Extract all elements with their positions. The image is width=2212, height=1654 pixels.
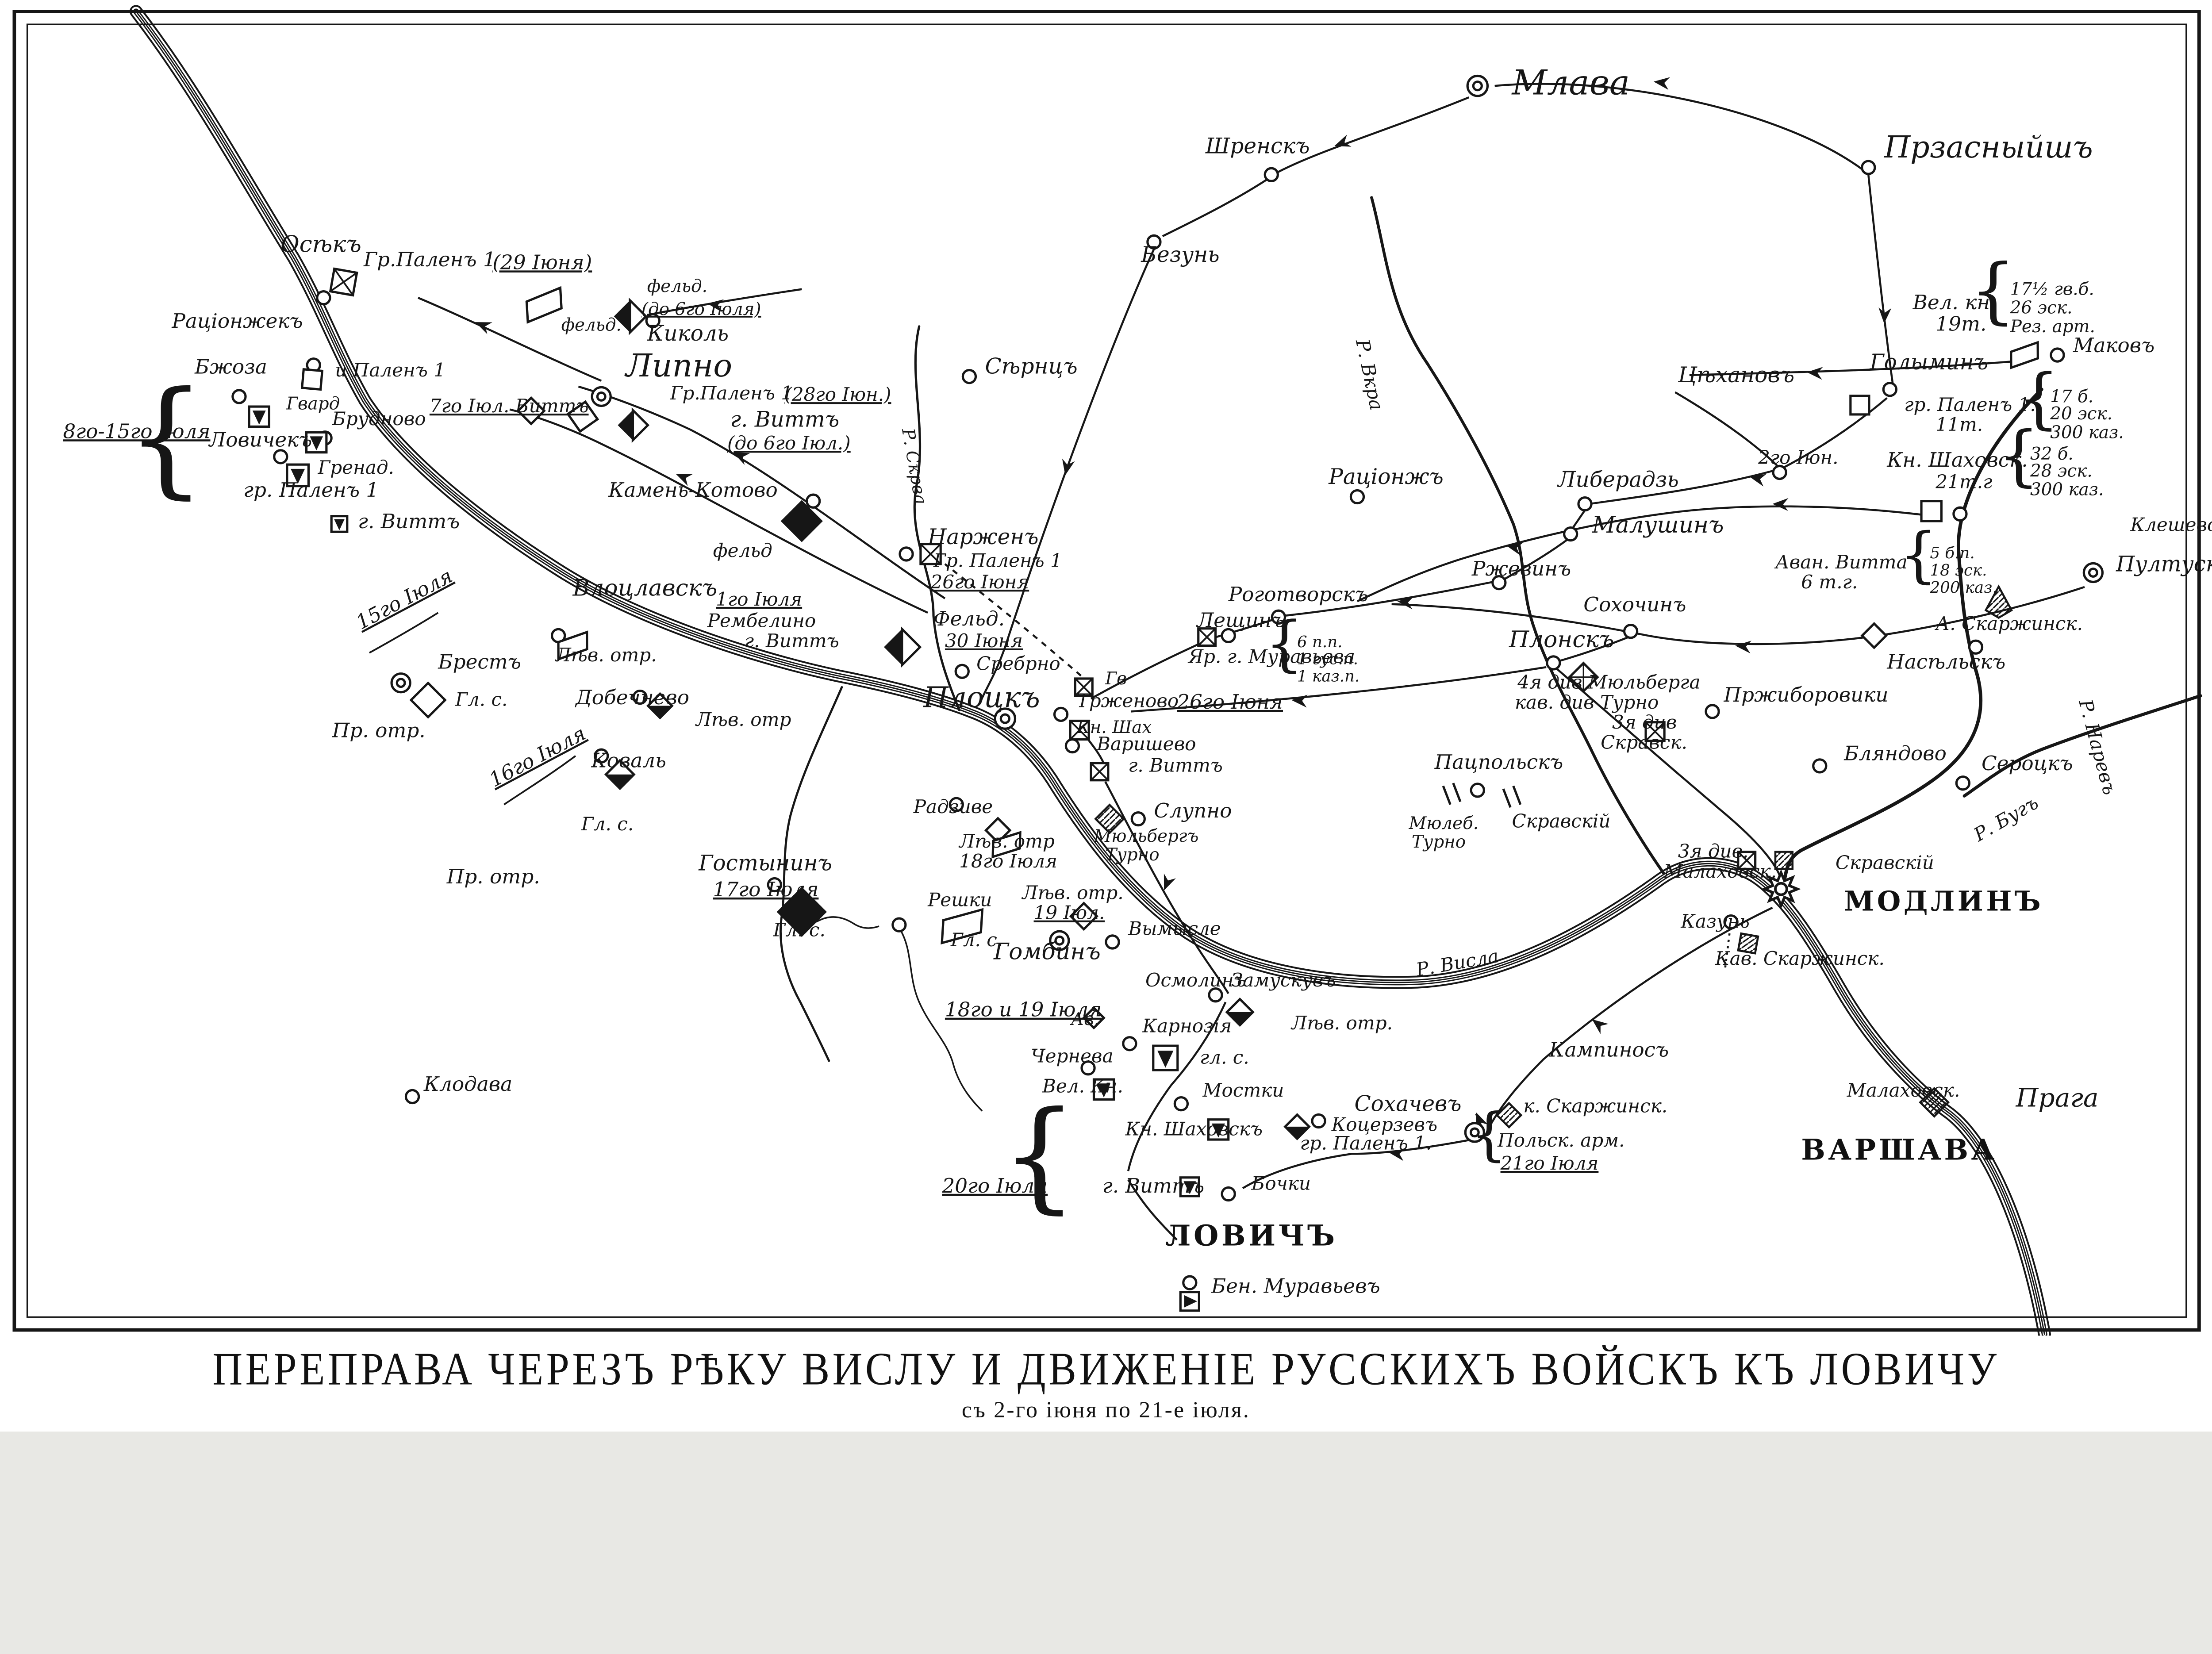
symbol-c	[956, 665, 968, 678]
map-label: 19 Іюл.	[1034, 902, 1105, 924]
map-label: 5 б.п.	[1930, 544, 1974, 562]
map-label: Решки	[927, 889, 992, 911]
map-label: Польск. арм.	[1497, 1129, 1624, 1151]
map-title: ПЕРЕПРАВА ЧЕРЕЗЪ РѢКУ ВИСЛУ И ДВИЖЕНІЕ Р…	[0, 1344, 2212, 1397]
route	[1443, 783, 1460, 805]
map-label: 26 эск.	[2010, 298, 2073, 318]
symbol-c	[1066, 740, 1079, 752]
map-label: Брестъ	[438, 650, 521, 673]
map-label: Пр. отр.	[332, 719, 426, 742]
map-label: Роготворскъ	[1228, 583, 1368, 606]
map-label: гр. Паленъ 1	[243, 478, 379, 502]
map-label: Камень-Котово	[608, 478, 777, 502]
map-label: Гл. с.	[581, 813, 634, 835]
symbol-c	[1175, 1098, 1187, 1110]
map-label: г. Виттъ	[1102, 1174, 1204, 1197]
map-label: фельд	[713, 540, 772, 561]
route	[1503, 786, 1521, 808]
symbol-c	[317, 292, 330, 304]
route	[1571, 398, 1887, 531]
map-label: Лѣв. отр	[695, 709, 791, 730]
map-label: Осѣкъ	[280, 231, 361, 258]
symbol-sq	[1921, 501, 1941, 521]
map-label: Бен. Муравьевъ	[1211, 1274, 1380, 1297]
map-label: 30 Іюня	[945, 630, 1023, 652]
map-label: Коваль	[591, 749, 666, 772]
map-label: 6 п.п.	[1297, 633, 1342, 651]
map-label: Гомбинъ	[993, 938, 1101, 965]
map-label: Липно	[624, 347, 732, 384]
map-label: Млава	[1511, 63, 1630, 103]
route-arrow	[1588, 1014, 1609, 1034]
map-label: Бжоза	[194, 355, 267, 379]
map-label: МОДЛИНЪ	[1844, 885, 2043, 917]
symbol-dbw	[618, 410, 648, 440]
map-subtitle: съ 2-го іюня по 21-е іюля.	[0, 1399, 2212, 1424]
map-label: Вел. кн.	[1912, 291, 1997, 314]
map-label: Бочки	[1251, 1172, 1311, 1194]
map-label: Нарженъ	[927, 525, 1039, 549]
map-label: Прзасныйшъ	[1883, 130, 2093, 165]
route-arrow	[1291, 694, 1308, 708]
map-label: 1 гус.п.	[1297, 650, 1358, 668]
map-label: Сохачевъ	[1354, 1091, 1461, 1116]
map-label: 21го Іюля	[1500, 1152, 1599, 1174]
map-label: Кав. Скаржинск.	[1715, 948, 1885, 969]
map-label: Р. Бугъ	[1970, 791, 2042, 846]
map-label: 17го Іюля	[713, 878, 819, 901]
symbol-sqt	[331, 516, 347, 532]
map-label: 300 каз.	[2030, 480, 2104, 500]
route-arrow	[1653, 75, 1670, 90]
map-label: 28 эск.	[2030, 461, 2093, 481]
map-label: 1го Іюля	[716, 588, 802, 610]
map-label: Казунь	[1680, 910, 1750, 932]
route-arrow	[1772, 498, 1789, 511]
map-label: Насѣльскъ	[1886, 650, 2005, 673]
map-label: Гостынинъ	[698, 851, 832, 876]
map-label: 3я див.	[1678, 840, 1749, 862]
route-arrow	[473, 316, 492, 334]
symbol-c	[1132, 813, 1144, 825]
map-label: Ав.	[1070, 1009, 1099, 1029]
symbol-c	[1564, 528, 1577, 541]
map-label: Кампиносъ	[1549, 1038, 1669, 1061]
map-label: Пржиборовики	[1723, 683, 1888, 706]
map-label: Киколь	[647, 321, 729, 346]
map-label: Вымысле	[1128, 917, 1221, 939]
map-label: Плоцкъ	[923, 681, 1040, 714]
map-label: Р. Вкра	[1352, 337, 1388, 412]
river	[914, 326, 959, 710]
map-label: 17½ гв.б.	[2010, 280, 2094, 299]
map-label: 26го Іюня	[930, 571, 1029, 593]
map-label: 11т.	[1935, 414, 1983, 435]
map-label: и Паленъ 1	[335, 359, 445, 381]
map-label: 6 т.г.	[1801, 571, 1858, 593]
symbol-c	[1547, 656, 1560, 669]
map-label: Влоцлавскъ	[572, 575, 717, 601]
symbol-c	[1954, 507, 1966, 520]
map-label: Скравск.	[1601, 732, 1687, 753]
symbol-sqt	[1153, 1046, 1178, 1070]
river-vistula	[136, 12, 2044, 1334]
map-label: Скравскій	[1836, 852, 1934, 873]
map-label: 7го Іюл. Виттъ	[430, 395, 589, 417]
map-label: г. Виттъ	[1128, 754, 1223, 776]
symbol-c	[1054, 708, 1067, 721]
map-label: Коцерзевъ	[1331, 1114, 1437, 1136]
symbol-c	[1578, 498, 1591, 510]
map-label: г. Виттъ	[730, 407, 839, 432]
map-label: Гр. Паленъ 1	[933, 550, 1062, 572]
map-label: Ловичекъ	[208, 428, 312, 452]
symbol-c	[1123, 1037, 1136, 1050]
map-label: Клодава	[423, 1072, 512, 1096]
map-label: Гренад.	[317, 457, 394, 478]
route	[418, 298, 601, 381]
map-label: 1 каз.п.	[1297, 667, 1359, 685]
map-label: Пр. отр.	[446, 865, 540, 888]
symbol-c	[406, 1090, 419, 1103]
map-label: Бляндово	[1843, 741, 1947, 765]
historical-map-page: {{{{{{{{МлаваПрзасныйшъШренскъБезуньСѣрн…	[0, 0, 2212, 1431]
map-label: Мюльбергъ	[1093, 826, 1198, 846]
route	[1163, 97, 1469, 236]
map-label: 300 каз.	[2050, 422, 2124, 442]
symbol-c	[1312, 1114, 1325, 1127]
map-label: Шренскъ	[1205, 134, 1310, 158]
map-label: 8го-15го Іюля	[63, 419, 210, 443]
symbol-c	[2051, 349, 2064, 361]
map-label: (до 6го Іюля)	[641, 299, 761, 319]
symbol-sq	[1851, 396, 1869, 414]
river-vistula	[136, 12, 2044, 1334]
symbol-dc	[1467, 76, 1487, 96]
map-label: (28го Іюн.)	[784, 384, 891, 405]
map-label: 4я див Мюльберга	[1517, 672, 1700, 693]
symbol-dc	[392, 674, 410, 692]
map-label: Малушинъ	[1592, 512, 1724, 538]
map-label: Р. Скрва	[898, 426, 931, 506]
map-label: Лѣв. отр.	[555, 644, 657, 666]
map-label: 26го Іюня	[1176, 690, 1283, 714]
symbol-c	[1351, 490, 1363, 503]
map-label: Либерадзь	[1557, 467, 1679, 492]
map-label: Ржевинъ	[1471, 557, 1571, 580]
route-arrow	[1158, 873, 1176, 893]
map-label: Кн. Шаховск.	[1886, 448, 2028, 472]
map-label: Гр.Паленъ 1	[670, 382, 793, 404]
symbol-sqtr	[1180, 1292, 1199, 1311]
map-label: Маковъ	[2073, 334, 2154, 357]
labels-layer: {{{{{{{{МлаваПрзасныйшъШренскъБезуньСѣрн…	[63, 63, 2212, 1298]
symbol-p	[522, 288, 567, 322]
map-label: Лещинъ	[1196, 608, 1285, 632]
map-label: Скравскій	[1512, 810, 1610, 832]
symbol-c	[1813, 760, 1826, 772]
symbol-dc	[592, 387, 611, 406]
symbol-c	[1265, 168, 1278, 181]
map-label: 3я див	[1612, 711, 1677, 733]
symbol-c	[807, 495, 820, 507]
symbol-sqx	[1091, 763, 1108, 780]
symbol-c	[274, 450, 287, 463]
map-label: Цѣхановъ	[1678, 363, 1794, 388]
symbol-c	[893, 918, 906, 931]
map-label: ЛОВИЧЪ	[1165, 1219, 1337, 1253]
brace: {	[1001, 1086, 1078, 1226]
river-vistula	[136, 12, 2044, 1334]
map-canvas: {{{{{{{{МлаваПрзасныйшъШренскъБезуньСѣрн…	[0, 0, 2212, 1335]
map-label: Сохочинъ	[1583, 593, 1686, 616]
symbol-sq	[302, 369, 323, 390]
map-label: гр. Паленъ 1.	[1300, 1132, 1432, 1154]
map-label: Рембелино	[707, 610, 816, 631]
map-label: фельд.	[561, 315, 622, 335]
map-label: Р. Наревъ	[2074, 697, 2121, 797]
river-vistula	[136, 12, 2044, 1334]
map-label: 20 эск.	[2050, 404, 2112, 424]
symbol-sqx	[330, 269, 357, 295]
map-label: 2го Іюн.	[1758, 447, 1838, 468]
map-label: Прага	[2016, 1083, 2099, 1113]
map-label: Чернева	[1031, 1045, 1114, 1067]
map-label: 21т.г	[1935, 471, 1992, 493]
symbol-d	[1862, 624, 1886, 648]
map-label: 18го Іюля	[959, 850, 1057, 872]
symbol-dbw	[884, 629, 920, 665]
map-label: (до 6го Іюл.)	[727, 432, 851, 454]
map-label: г. Виттъ	[358, 510, 460, 533]
map-label: гр. Паленъ 1.	[1904, 394, 2036, 415]
map-label: Кн. Шаховскъ	[1125, 1118, 1263, 1140]
map-label: Сѣрнцъ	[985, 354, 1078, 379]
symbol-c	[1956, 777, 1969, 790]
symbol-sqt	[249, 407, 269, 426]
map-label: Голыминъ	[1870, 350, 1989, 375]
map-label: Варишево	[1096, 733, 1196, 755]
route-arrow	[1735, 639, 1751, 653]
symbol-c	[900, 548, 913, 560]
map-label: Малаховск.	[1663, 860, 1777, 882]
map-label: Лѣв. отр.	[1290, 1012, 1393, 1034]
symbol-d	[411, 683, 445, 717]
map-label: фельд.	[647, 276, 707, 296]
map-label: Карнозія	[1142, 1015, 1232, 1036]
symbol-c	[1706, 705, 1719, 718]
map-label: кав. див Турно	[1515, 691, 1659, 713]
route-arrow	[1878, 307, 1891, 324]
map-label: Малаховск.	[1847, 1079, 1960, 1101]
map-label: Замускувъ	[1231, 969, 1336, 991]
map-label: гл. с.	[1200, 1047, 1249, 1068]
map-label: к. Скаржинск.	[1523, 1095, 1667, 1117]
symbol-c	[233, 390, 246, 403]
map-label: Аван. Витта	[1774, 551, 1908, 573]
map-label: Турно	[1412, 832, 1466, 852]
symbol-sqh	[1775, 852, 1793, 869]
map-label: Трженово	[1077, 690, 1179, 712]
symbol-c	[1471, 784, 1484, 797]
map-label: 19т.	[1935, 312, 1986, 336]
map-label: Лѣв. отр	[958, 830, 1055, 852]
map-label: 15го Іюля	[352, 564, 457, 634]
map-label: 200 каз.	[1929, 579, 1997, 597]
river-vistula	[136, 12, 2044, 1334]
map-label: Гр.Паленъ 1	[363, 248, 496, 271]
map-label: Добечнево	[575, 686, 689, 709]
map-label: А. Скаржинск.	[1934, 613, 2083, 634]
map-label: Турно	[1105, 845, 1159, 865]
map-label: Плонскъ	[1509, 626, 1614, 653]
map-label: (29 Іюня)	[492, 250, 592, 274]
symbol-c	[1106, 936, 1119, 948]
map-label: Безунь	[1141, 242, 1219, 267]
map-label: 18 эск.	[1930, 561, 1987, 579]
map-label: Мостки	[1202, 1079, 1284, 1101]
symbol-c	[1222, 1187, 1235, 1200]
map-label: Раціонжъ	[1328, 464, 1444, 489]
route-arrow	[1806, 366, 1823, 380]
map-label: г. Виттъ	[745, 630, 839, 652]
map-label: Гл. с.	[455, 688, 507, 710]
map-label: Сребрно	[976, 653, 1060, 675]
symbol-dc	[2084, 563, 2102, 582]
map-label: Слупно	[1154, 799, 1232, 822]
map-label: Раціонжекъ	[171, 309, 303, 333]
symbol-c	[963, 370, 975, 383]
map-label: Пацпольскъ	[1434, 750, 1563, 774]
route-arrow	[1059, 459, 1075, 477]
map-label: Радзиве	[913, 796, 993, 817]
map-label: Гл. с.	[773, 919, 826, 941]
symbol-c	[1883, 383, 1896, 396]
map-label: Фельд.	[933, 607, 1005, 630]
map-label: Брудново	[332, 408, 426, 430]
symbol-c	[1624, 625, 1637, 638]
map-label: Сероцкъ	[1982, 752, 2073, 775]
map-label: 20го Іюля	[941, 1174, 1048, 1197]
map-label: Лѣв. отр.	[1022, 882, 1124, 903]
symbol-c	[1183, 1276, 1196, 1289]
symbol-c	[1862, 161, 1875, 174]
map-label: ВАРШАВА	[1801, 1133, 1997, 1167]
map-label: Гв	[1105, 669, 1126, 689]
map-label: Вел. Кн.	[1042, 1075, 1123, 1097]
map-label: Мюлеб.	[1408, 814, 1479, 833]
